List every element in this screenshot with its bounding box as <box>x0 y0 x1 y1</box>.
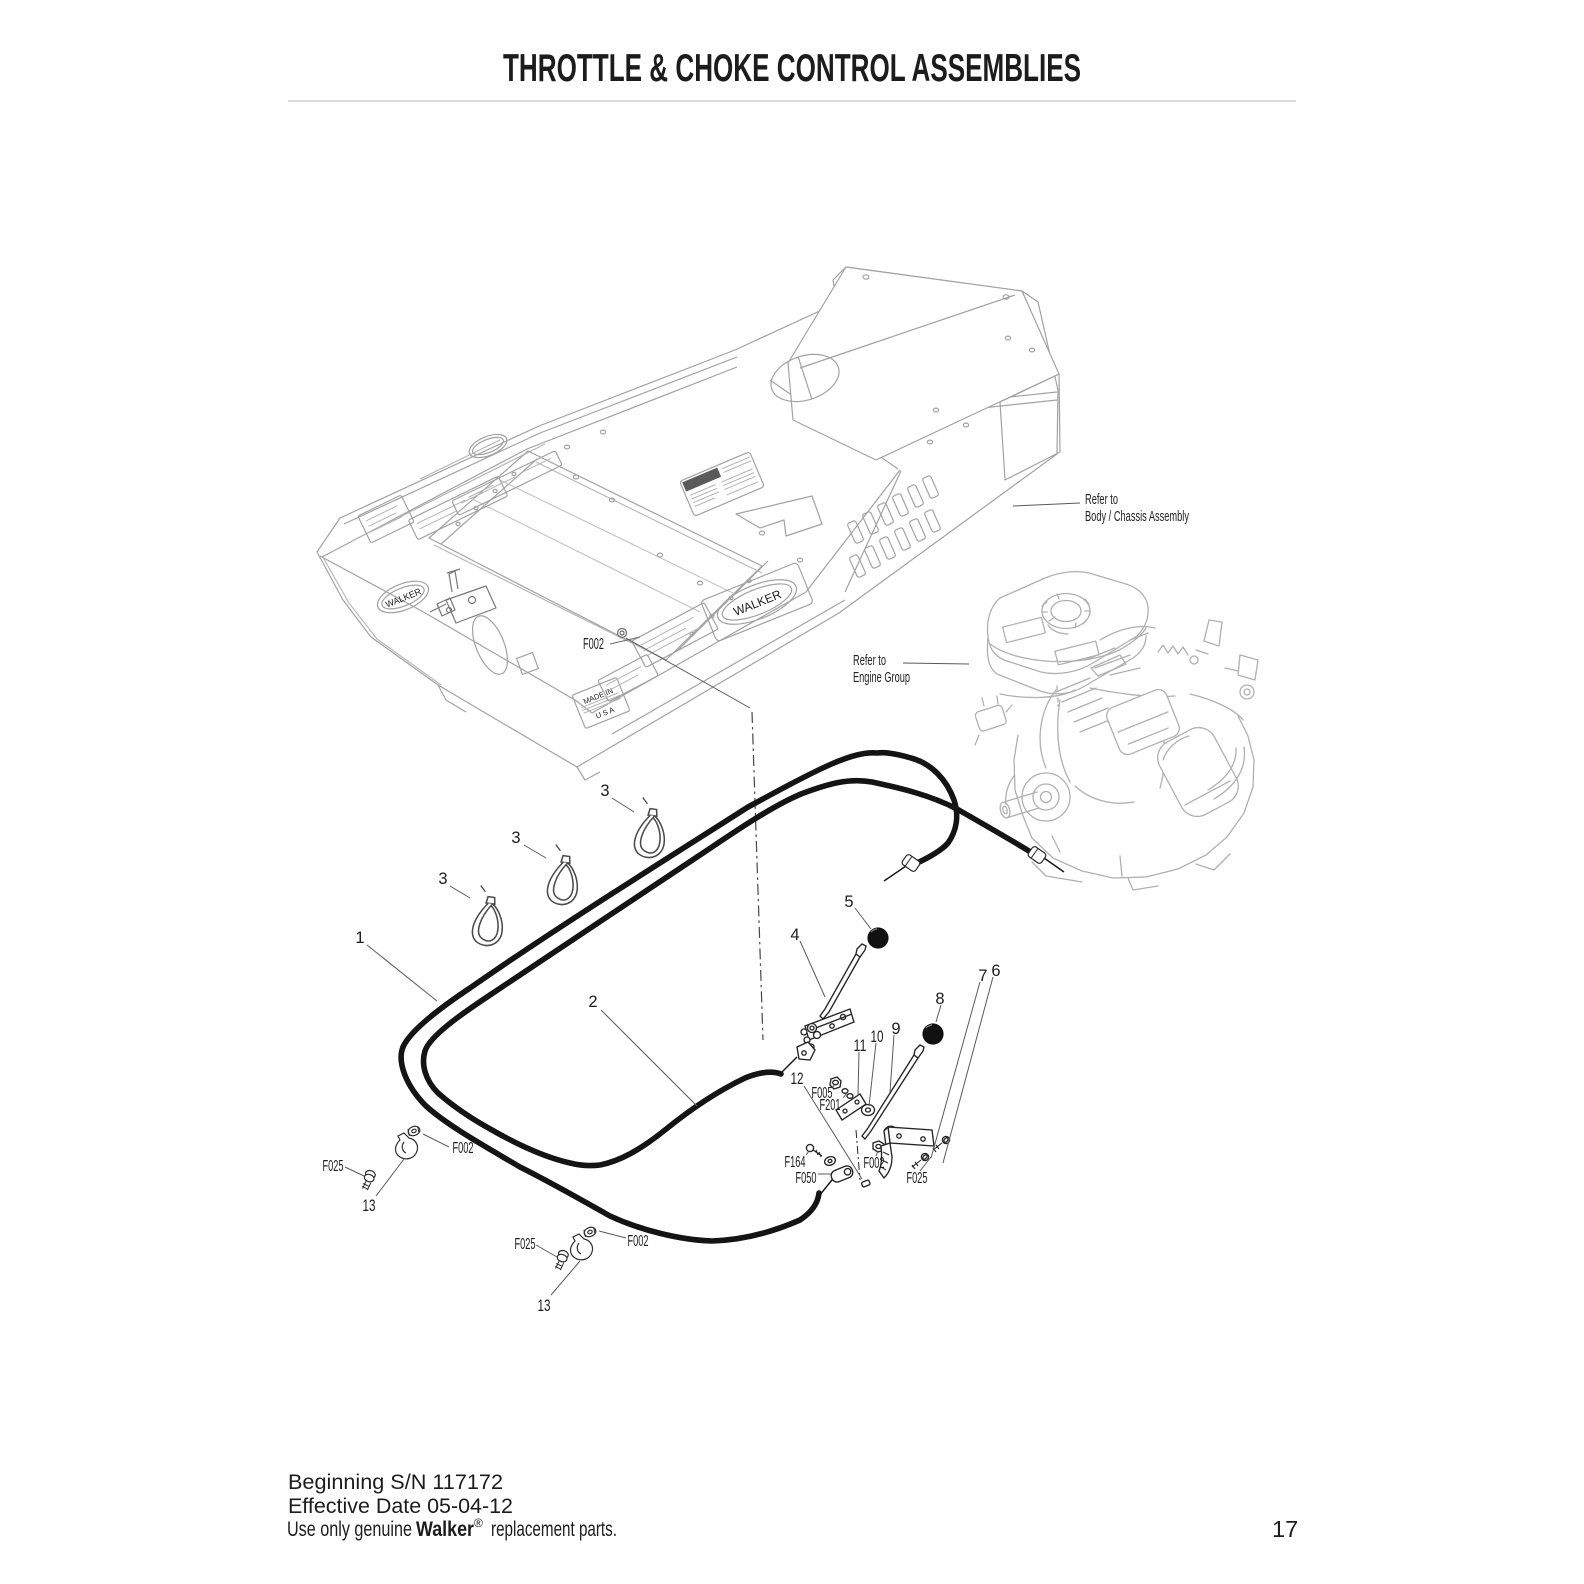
svg-text:3: 3 <box>438 870 447 888</box>
svg-text:replacement parts.: replacement parts. <box>491 1518 617 1541</box>
svg-text:F002: F002 <box>583 636 604 653</box>
svg-text:13: 13 <box>363 1197 376 1215</box>
svg-text:F025: F025 <box>515 1236 536 1253</box>
svg-text:Body / Chassis Assembly: Body / Chassis Assembly <box>1085 509 1189 525</box>
svg-text:Refer to: Refer to <box>853 653 886 669</box>
svg-text:F002: F002 <box>628 1233 649 1250</box>
svg-text:17: 17 <box>1272 1516 1298 1542</box>
svg-text:12: 12 <box>791 1070 804 1088</box>
svg-text:10: 10 <box>871 1028 884 1046</box>
svg-text:11: 11 <box>854 1037 867 1055</box>
svg-text:9: 9 <box>891 1020 900 1038</box>
svg-text:1: 1 <box>355 929 364 947</box>
svg-text:Refer to: Refer to <box>1085 492 1118 508</box>
svg-text:3: 3 <box>511 829 520 847</box>
svg-text:F201: F201 <box>820 1097 841 1114</box>
svg-text:7: 7 <box>978 967 987 985</box>
svg-text:6: 6 <box>991 962 1000 980</box>
svg-text:2: 2 <box>588 993 597 1011</box>
svg-text:F002: F002 <box>864 1155 885 1172</box>
svg-text:F002: F002 <box>453 1140 474 1157</box>
svg-text:3: 3 <box>600 782 609 800</box>
svg-text:8: 8 <box>935 990 944 1008</box>
svg-text:Engine Group: Engine Group <box>853 670 910 686</box>
svg-text:Use only genuine: Use only genuine <box>287 1518 412 1541</box>
svg-text:F025: F025 <box>907 1170 928 1187</box>
svg-text:THROTTLE & CHOKE CONTROL ASSEM: THROTTLE & CHOKE CONTROL ASSEMBLIES <box>503 47 1081 90</box>
svg-text:F050: F050 <box>796 1170 817 1187</box>
svg-text:®: ® <box>474 1516 483 1530</box>
svg-text:5: 5 <box>844 893 853 911</box>
svg-text:Effective Date 05-04-12: Effective Date 05-04-12 <box>288 1495 513 1518</box>
svg-text:F164: F164 <box>785 1154 806 1171</box>
svg-text:Beginning S/N 117172: Beginning S/N 117172 <box>288 1471 503 1494</box>
svg-text:Walker: Walker <box>416 1518 474 1541</box>
svg-text:F025: F025 <box>323 1158 344 1175</box>
svg-text:4: 4 <box>790 926 799 944</box>
svg-text:13: 13 <box>538 1297 551 1315</box>
